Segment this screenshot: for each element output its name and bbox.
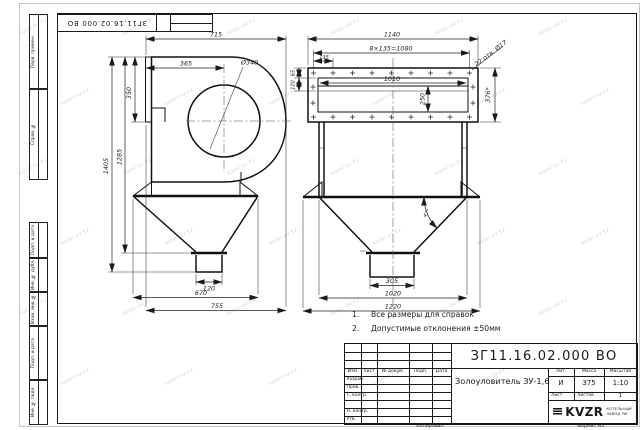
dim-1140: 1140 <box>384 31 400 39</box>
logo-text: KVZR <box>565 405 603 419</box>
part-title: Золоуловитель ЗУ-1,6 <box>455 376 547 386</box>
dim-250: 250 <box>419 93 427 105</box>
dim-1010: 1010 <box>384 75 400 83</box>
mass-value: 375 <box>574 379 604 387</box>
col-data: Дата <box>432 370 451 375</box>
outlet-box <box>196 255 222 272</box>
company-logo: KVZR КОТЕЛЬНЫЙ ЗАВОД РФ <box>548 400 637 423</box>
col-dokum: № докум. <box>377 370 409 375</box>
dim-350: 350 <box>125 87 133 99</box>
col-izm: Изм. <box>345 370 361 375</box>
lit-value: И <box>548 379 574 387</box>
dim-715: 715 <box>210 31 222 39</box>
logo-sub-line2: ЗАВОД РФ <box>606 412 631 417</box>
footer-format: Формат А3 <box>577 424 604 429</box>
title-block: Изм. Лист № докум. Подп. Дата Разраб. Пр… <box>344 343 638 425</box>
dim-670: 670 <box>195 289 207 297</box>
col-list: Лист <box>361 370 377 375</box>
dim-d340: Ø340 <box>240 59 258 67</box>
sheets-label: Листов <box>577 394 594 399</box>
lit-label: Лит. <box>548 370 574 375</box>
dim-376: 376* <box>484 87 492 102</box>
note-1: 1.Все размеры для справок <box>352 310 474 319</box>
row-nkontr: Н. контр. <box>347 410 369 415</box>
doc-number: ЗГ11.16.02.000 ВО <box>451 344 637 368</box>
row-utv: Утв. <box>347 418 356 423</box>
dim-120-front: 120 <box>291 80 297 90</box>
dim-angle-47: 47° <box>422 208 432 219</box>
cone <box>133 196 258 252</box>
scale-label: Масштаб <box>604 370 637 375</box>
dim-135: 135 <box>319 55 329 61</box>
row-tkontr: Т. контр. <box>347 394 368 399</box>
footer-copied: Копировал <box>400 424 460 429</box>
note-text: Допустимые отклонения ±50мм <box>371 324 501 333</box>
mass-label: Масса <box>574 370 604 375</box>
outlet-box <box>370 255 414 277</box>
dim-755: 755 <box>211 302 223 310</box>
dim-365: 365 <box>180 60 192 68</box>
gussets <box>303 182 480 197</box>
note-number: 1. <box>352 310 371 319</box>
dim-65: 65 <box>291 70 297 76</box>
scale-value: 1:10 <box>604 379 637 387</box>
note-number: 2. <box>352 324 371 333</box>
col-podp: Подп. <box>409 370 432 375</box>
row-prov: Пров. <box>347 386 360 391</box>
sheets-value: 1 <box>604 394 637 400</box>
inlet-flange <box>146 57 152 122</box>
note-text: Все размеры для справок <box>371 310 474 319</box>
row-razrab: Разраб. <box>347 378 365 383</box>
sheet-label: Лист <box>551 394 562 399</box>
logo-subtitle: КОТЕЛЬНЫЙ ЗАВОД РФ <box>606 407 631 416</box>
dim-pitch: 8×135=1080 <box>369 45 412 53</box>
dim-1285: 1285 <box>116 149 124 165</box>
scroll-outline <box>152 57 287 182</box>
side-view-drawing: 715 365 Ø340 350 1405 1285 120 670 755 <box>102 31 292 311</box>
dim-1020: 1020 <box>385 290 401 298</box>
dimension-lines <box>112 39 286 311</box>
dim-1405: 1405 <box>102 158 110 174</box>
logo-mark-icon <box>553 408 562 416</box>
drawing-sheet: kotel-kv.kzkotel-kv.kzkotel-kv.kzkotel-k… <box>0 0 644 430</box>
note-2: 2.Допустимые отклонения ±50мм <box>352 324 501 333</box>
front-view-drawing: 1140 8×135=1080 135 1010 250 65 120 22 о… <box>291 31 509 319</box>
inlet-step <box>152 108 166 122</box>
dim-305: 305 <box>386 277 398 285</box>
diameter-leader <box>210 67 243 149</box>
